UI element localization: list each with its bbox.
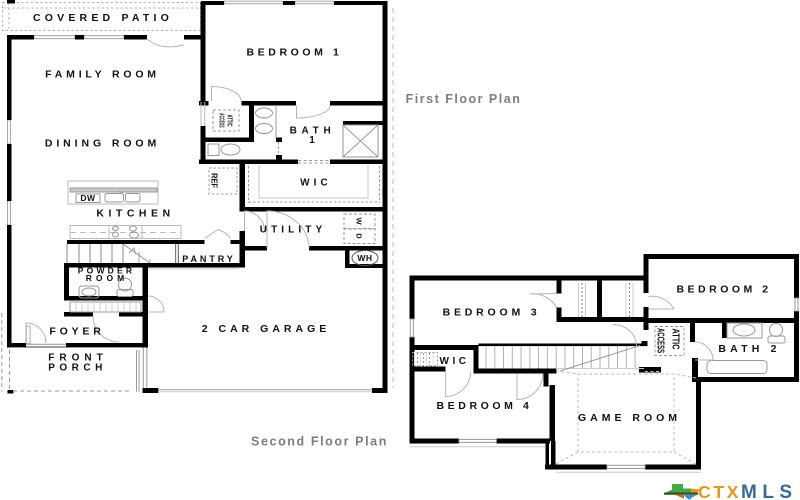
svg-text:COVERED PATIO: COVERED PATIO — [33, 12, 173, 24]
svg-text:BATH 2: BATH 2 — [718, 343, 780, 355]
svg-text:BEDROOM 4: BEDROOM 4 — [437, 400, 533, 412]
svg-text:1: 1 — [309, 135, 315, 146]
svg-text:ACCESS: ACCESS — [217, 113, 224, 128]
svg-text:BEDROOM 1: BEDROOM 1 — [247, 47, 343, 59]
svg-text:First Floor Plan: First Floor Plan — [406, 92, 522, 106]
svg-text:GAME ROOM: GAME ROOM — [578, 412, 681, 424]
svg-text:UTILITY: UTILITY — [260, 225, 326, 236]
svg-text:BEDROOM 2: BEDROOM 2 — [676, 284, 771, 296]
svg-text:ACCESS: ACCESS — [655, 328, 666, 353]
svg-text:PANTRY: PANTRY — [182, 254, 235, 264]
svg-text:KITCHEN: KITCHEN — [96, 208, 174, 220]
svg-text:WIC: WIC — [300, 178, 332, 189]
svg-text:Second Floor Plan: Second Floor Plan — [251, 435, 388, 449]
svg-text:REF: REF — [210, 173, 219, 188]
svg-text:ATTIC: ATTIC — [225, 115, 232, 127]
svg-text:WIC: WIC — [440, 356, 470, 367]
svg-text:DW: DW — [80, 193, 96, 203]
svg-text:CTX: CTX — [698, 482, 741, 500]
svg-text:DINING ROOM: DINING ROOM — [45, 138, 160, 150]
svg-text:FAMILY ROOM: FAMILY ROOM — [45, 69, 160, 81]
svg-text:FOYER: FOYER — [49, 326, 104, 338]
svg-text:PORCH: PORCH — [48, 363, 107, 374]
svg-text:D: D — [355, 233, 364, 239]
svg-text:ROOM: ROOM — [86, 273, 128, 283]
svg-text:W: W — [355, 217, 364, 225]
svg-text:BEDROOM 3: BEDROOM 3 — [443, 307, 541, 319]
svg-text:MLS: MLS — [741, 482, 798, 500]
svg-text:WH: WH — [357, 253, 372, 263]
svg-text:2 CAR GARAGE: 2 CAR GARAGE — [202, 323, 331, 335]
svg-text:ATTIC: ATTIC — [670, 329, 681, 350]
